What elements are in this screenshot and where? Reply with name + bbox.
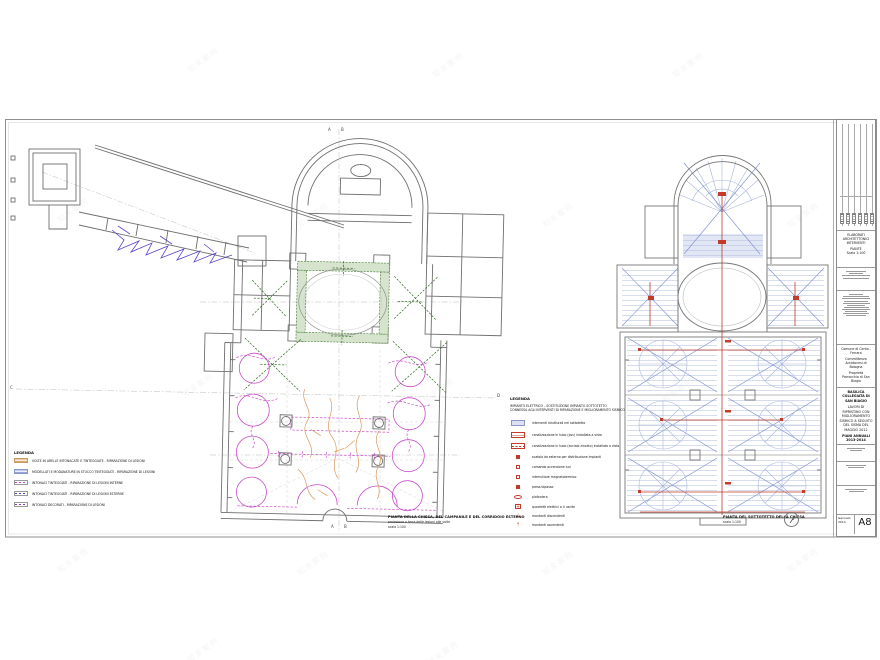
legend-label: presa bipasso [532,485,553,489]
plans-drawing [0,0,880,660]
legend-label: montanti ascendenti [532,523,564,527]
title-block: ELABORATI ARCHITETTONICI INTERVENTI PIAN… [836,119,876,537]
legend-label: VOLTE IN ARELLE INTONACATE E TINTEGGIATE… [32,459,145,463]
symbol-plafoniera [514,495,522,499]
doc-scale: Scala 1:100 [839,251,873,255]
comune: Comune di Cento - Ferrara [839,347,873,355]
swatch-lesioni-esterne [14,491,28,496]
legend-elettrico-title: LEGENDA [510,396,640,401]
section-marker-d: D [497,394,500,398]
legend-item: MODELLATI E MODANATURE IN STUCCO TINTEGG… [14,469,204,474]
section-marker-b-top: B [341,128,344,132]
symbol-presa-bipasso [516,485,520,489]
legend-label: INTONACI TINTEGGIATI - RIPARAZIONE DI LE… [32,481,123,485]
aux-block [837,445,875,462]
legend-item: INTONACI DECORATI - RIPARAZIONE DI LESIO… [14,502,204,507]
legend-elettrico-subtitle: CONNESSA AGLI INTERVENTI DI RIPARAZIONE … [510,408,640,412]
legend-item: interventi strutturali nel sottotetto [510,417,640,429]
aux-block [837,462,875,486]
legend-label: MODELLATI E MODANATURE IN STUCCO TINTEGG… [32,470,155,474]
legend-item: canalizzazione in tubo (acciaio zincato)… [510,441,640,452]
legend-item: presa bipasso [510,482,640,492]
section-marker-c: C [10,386,13,390]
technical-contacts [837,291,875,345]
legend-label: quadretti elettrici a 4 uscite [532,505,575,509]
legend-label: comando accensione luci [532,465,571,469]
legend-lesioni-title: LEGENDA [14,450,204,455]
symbol-scatola-esterno [516,455,520,459]
swatch-volte [14,458,28,463]
section-marker-a-bottom: A [331,525,334,529]
legend-item: VOLTE IN ARELLE INTONACATE E TINTEGGIATE… [14,458,204,463]
legend-label: canalizzazione in tubo (acciaio zincato)… [532,444,619,448]
document-type: ELABORATI ARCHITETTONICI INTERVENTI PIAN… [837,231,875,268]
sheet-date: Gennaio 2014 [837,515,855,534]
legend-label: canalizzazione in tubo (pvc) installata … [532,433,602,437]
swatch-decorati [14,502,28,507]
legend-impianto-elettrico: LEGENDA IMPIANTO ELETTRICO - SOSTITUZION… [510,396,640,530]
legend-item: canalizzazione in tubo (pvc) installata … [510,429,640,441]
section-marker-b-bottom: B [344,525,347,529]
project-phase: PIANI ANNUALI 2013-2014 [839,434,873,443]
symbol-interruttore [516,475,520,479]
doc-type-line: ELABORATI ARCHITETTONICI [839,233,873,241]
legend-label: scatola da esterno per distribuzione imp… [532,455,601,459]
legend-item: INTONACI TINTEGGIATI - RIPARAZIONE DI LE… [14,480,204,485]
proprieta: Parrocchia di San Biagio [839,375,873,383]
committenza-block: Comune di Cento - Ferrara Committenza Ar… [837,345,875,388]
legend-item: plafoniera [510,492,640,502]
legend-item: INTONACI TINTEGGIATI - RIPARAZIONE DI LE… [14,491,204,496]
legend-item: comando accensione luci [510,462,640,472]
committenza: Arcidiocesi di Bologna [839,361,873,369]
legend-label: INTONACI DECORATI - RIPARAZIONE DI LESIO… [32,503,105,507]
studio-info [837,268,875,291]
sheet-id-row: Gennaio 2014 A8 [837,515,875,534]
legend-label: INTONACI TINTEGGIATI - RIPARAZIONE DI LE… [32,492,124,496]
left-plan-scale: scala 1:100 [388,525,525,530]
swatch-stucco [14,469,28,474]
revision-table [837,120,875,231]
project-title-block: BASILICA COLLEGIATA DI SAN BIAGIO LAVORI… [837,388,875,445]
symbol-tubo-acciaio [511,443,525,449]
drawing-sheet: 知末案例 知末案例 知末案例 知末案例 知末案例 知末案例 知末案例 知末案例 … [0,0,880,660]
symbol-tubo-pvc [511,432,525,438]
legend-item: scatola da esterno per distribuzione imp… [510,452,640,462]
legend-item: ⇣ montanti discendenti [510,512,640,521]
aux-block [837,486,875,515]
legend-label: interventi strutturali nel sottotetto [532,421,585,425]
right-plan [617,155,828,525]
project-description: LAVORI DI RIPRISTINO CON MIGLIORAMENTO S… [839,405,873,432]
legend-label: plafoniera [532,495,548,499]
north-arrow-icon [784,512,799,527]
swatch-lesioni-interne [14,480,28,485]
project-name: BASILICA COLLEGIATA DI SAN BIAGIO [839,390,873,403]
legend-item: ⇡ montanti ascendenti [510,521,640,530]
legend-item: interruttore magnetotermico [510,472,640,482]
symbol-comando-luci [516,465,520,469]
symbol-interventi-strutturali [511,420,525,426]
legend-lesioni: LEGENDA VOLTE IN ARELLE INTONACATE E TIN… [14,450,204,507]
legend-label: interruttore magnetotermico [532,475,576,479]
doc-type-line: INTERVENTI [839,241,873,245]
legend-label: montanti discendenti [532,514,565,518]
symbol-quadretti [515,504,521,509]
section-marker-a-top: A [328,128,331,132]
sheet-code: A8 [855,515,875,534]
left-plan-caption: PIANTA DELLA CHIESA, DEL CAMPANILE E DEL… [388,515,525,530]
legend-item: quadretti elettrici a 4 uscite [510,502,640,512]
